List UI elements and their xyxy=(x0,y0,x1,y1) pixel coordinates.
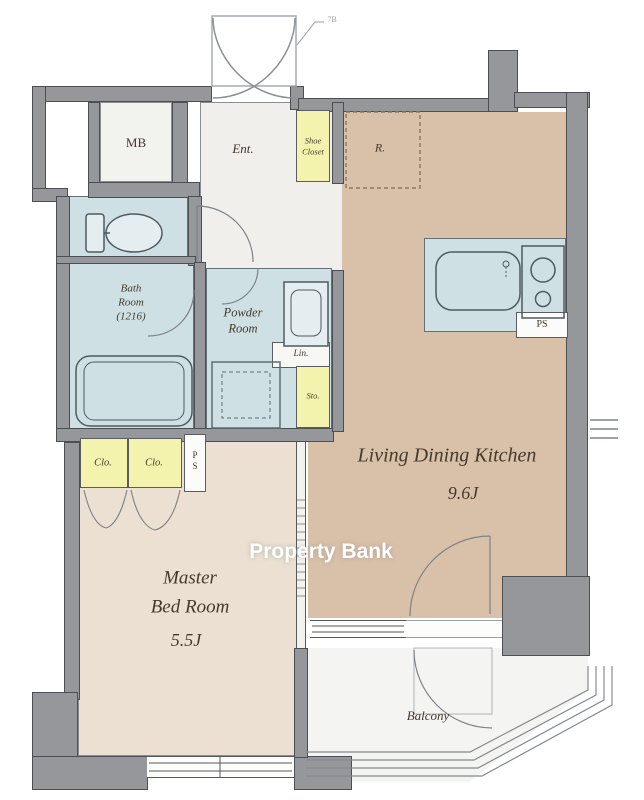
hall-door-arc xyxy=(197,206,253,262)
ldk-label: Living Dining Kitchen xyxy=(358,444,537,469)
powder-door-arc xyxy=(222,268,258,304)
bathtub-icon xyxy=(76,356,192,426)
powder-label: Powder Room xyxy=(224,305,263,336)
entrance-door-swing xyxy=(212,16,296,98)
shoe-closet-label: Shoe Closet xyxy=(302,135,324,156)
refrigerator-label: R. xyxy=(375,141,385,156)
bath-label: Bath Room (1216) xyxy=(116,282,145,323)
kitchen-sink-icon xyxy=(436,252,520,310)
stove-icon xyxy=(522,246,564,318)
pipe-space-closet-label: P S xyxy=(192,450,197,473)
pipe-space-kitchen-label: PS xyxy=(536,319,547,332)
closet-right-label: Clo. xyxy=(145,456,163,469)
entrance-door-type-label: 7B xyxy=(327,15,336,25)
floorplan: MB Ent. Shoe Closet R. Bath Room (1216) … xyxy=(0,0,644,800)
ldk-size-label: 9.6J xyxy=(448,482,479,505)
bath-door-arc xyxy=(148,290,194,336)
linework-layer xyxy=(0,0,644,800)
bedroom-window-glass xyxy=(149,757,292,777)
master-bedroom-size-label: 5.5J xyxy=(171,629,202,652)
linen-label: Lin. xyxy=(293,349,308,361)
balcony-label: Balcony xyxy=(407,708,450,724)
balcony-door-swing xyxy=(410,536,492,728)
toilet-icon xyxy=(86,214,162,252)
entrance-label: Ent. xyxy=(232,141,253,157)
washbasin-icon xyxy=(284,282,328,346)
ldk-window-glass xyxy=(312,626,404,632)
property-bank-watermark: Property Bank xyxy=(249,540,393,564)
mb-label: MB xyxy=(126,135,146,151)
door-label-leader xyxy=(297,22,324,45)
closet-left-label: Clo. xyxy=(94,456,112,469)
closet-curtain-arcs xyxy=(84,490,180,530)
pipe-stubs xyxy=(590,420,618,438)
master-bedroom-label: Master Bed Room xyxy=(151,564,230,623)
washer-space-icon xyxy=(212,362,280,428)
storage-label: Sto. xyxy=(307,391,320,402)
